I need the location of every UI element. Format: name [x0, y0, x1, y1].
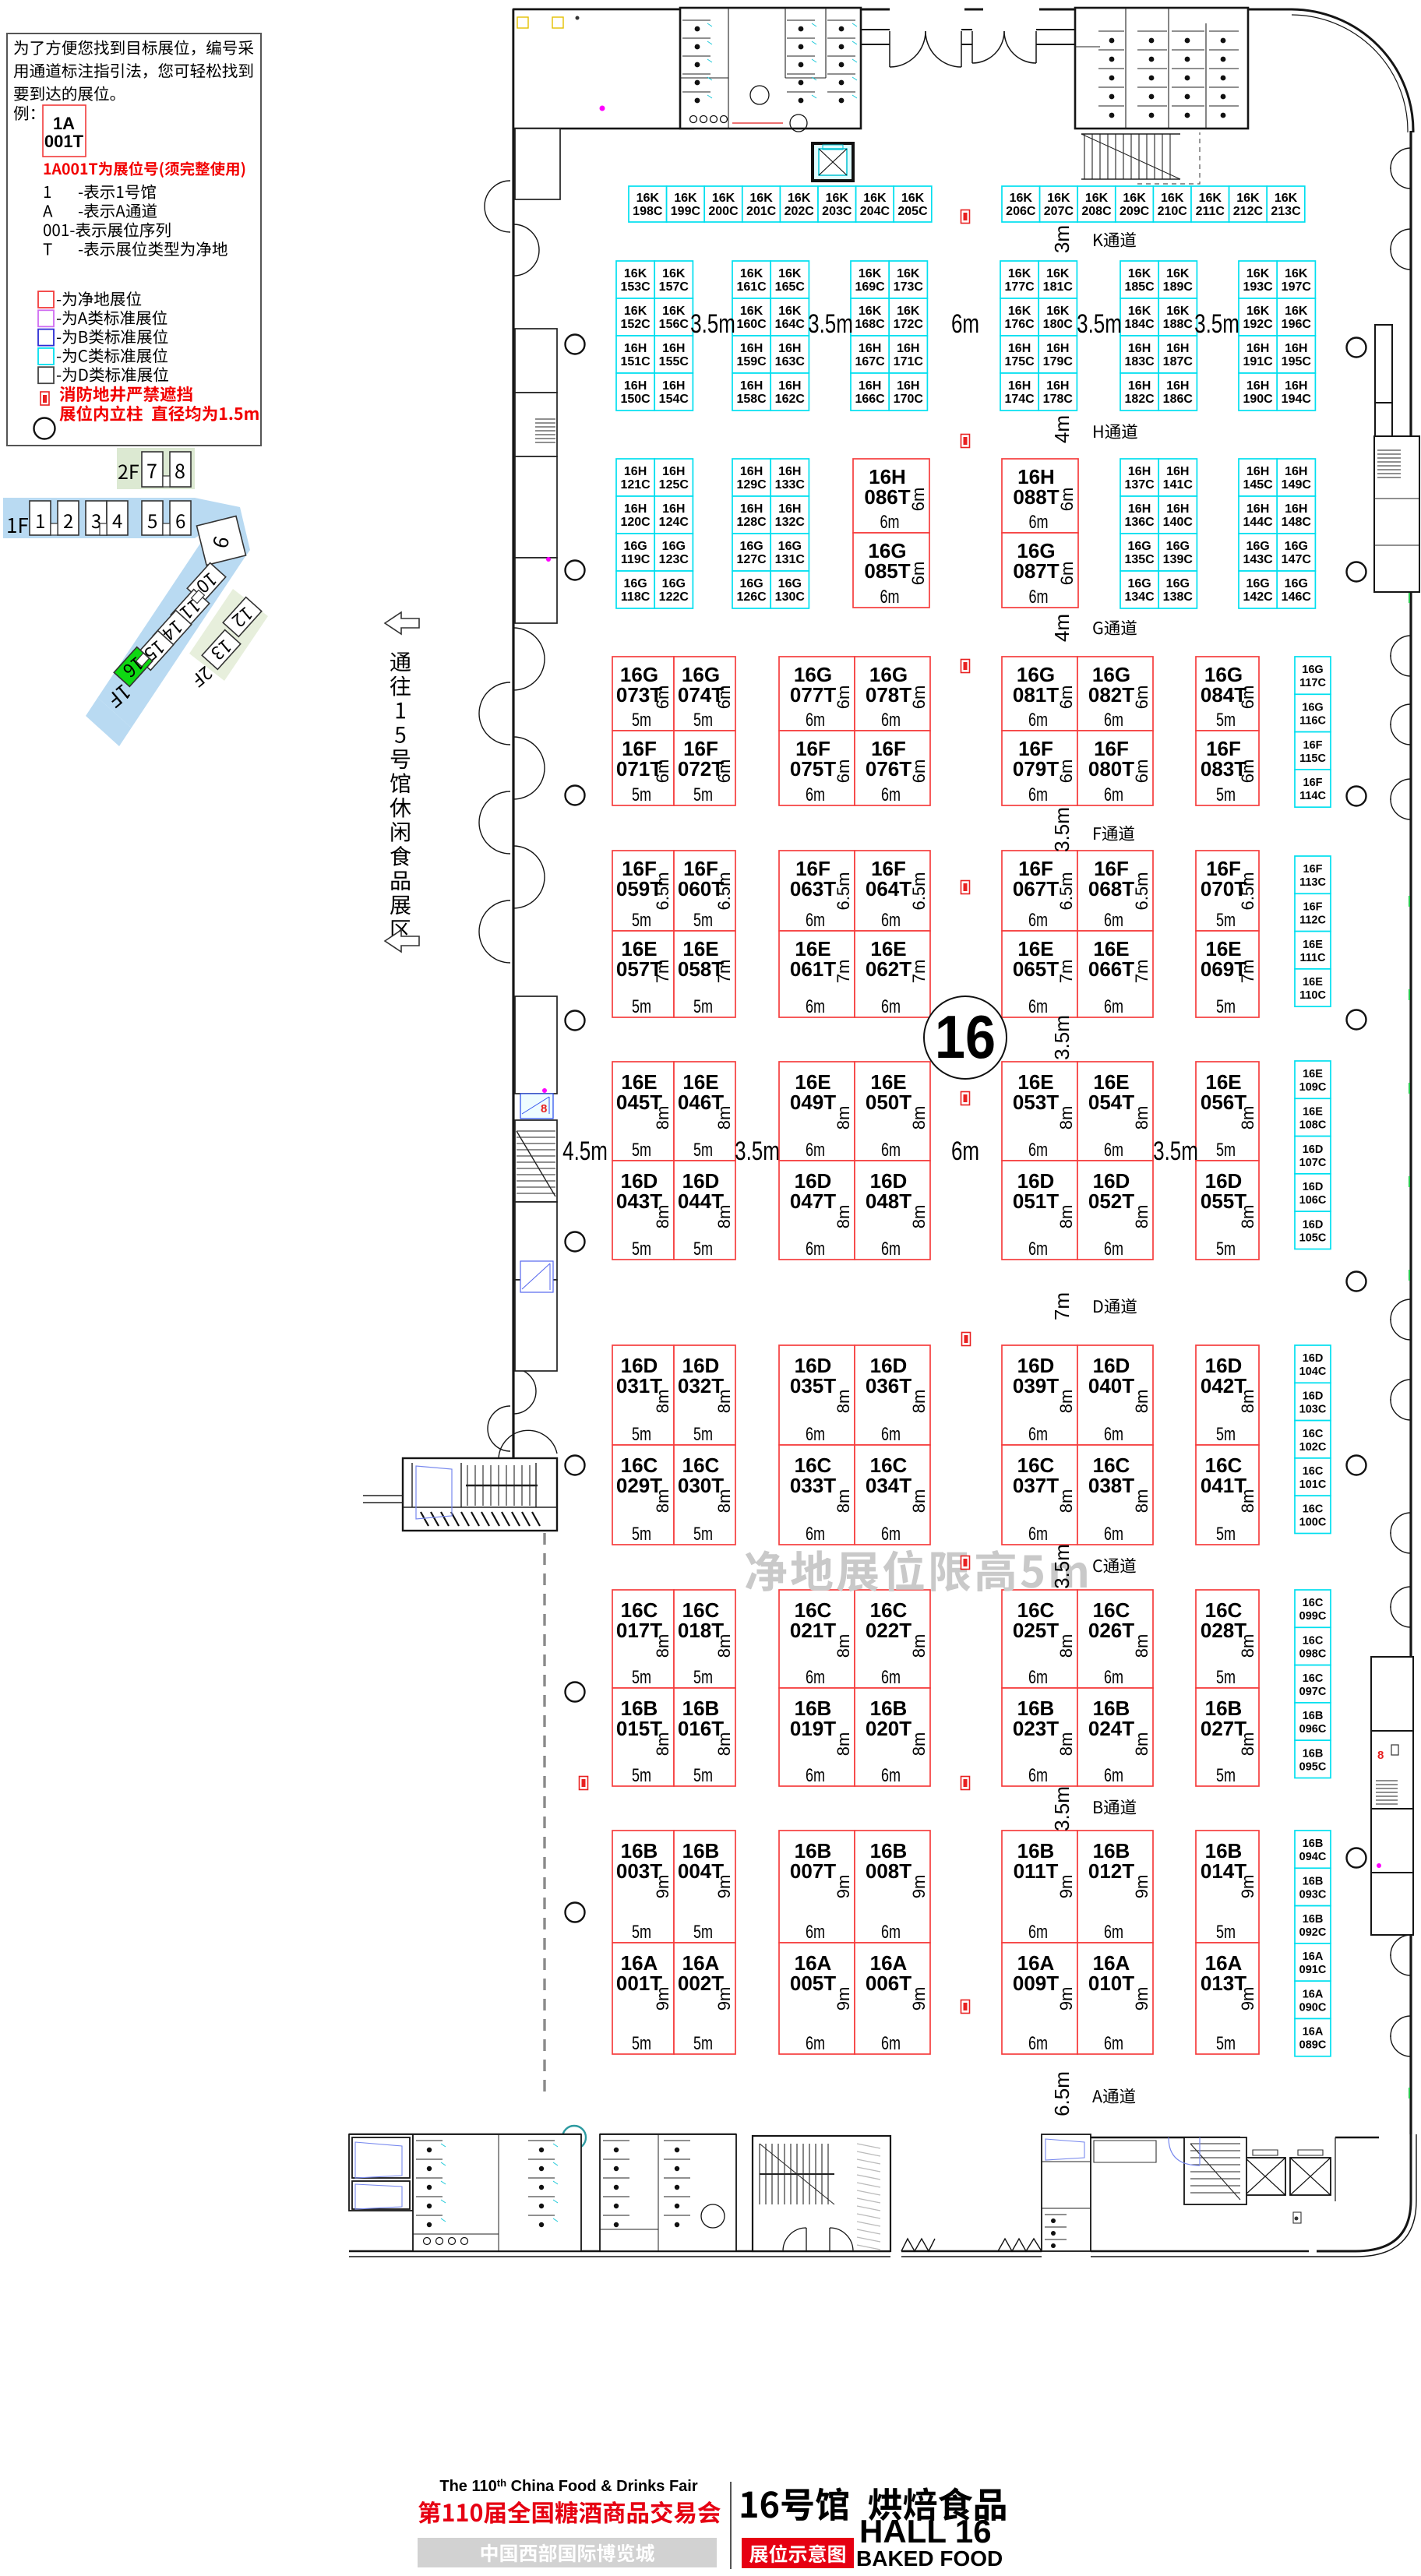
svg-text:036T: 036T	[866, 1374, 911, 1397]
svg-text:109C: 109C	[1299, 1081, 1327, 1094]
svg-text:209C: 209C	[1120, 205, 1150, 218]
svg-text:6m: 6m	[1104, 1766, 1123, 1786]
svg-text:16H: 16H	[1246, 379, 1269, 393]
svg-text:6m: 6m	[1238, 685, 1257, 710]
svg-text:117C: 117C	[1299, 677, 1326, 689]
svg-text:16A: 16A	[1303, 2026, 1324, 2039]
svg-text:211C: 211C	[1196, 205, 1225, 218]
svg-text:6m: 6m	[1104, 710, 1123, 731]
svg-text:132C: 132C	[775, 516, 806, 529]
svg-text:16A: 16A	[1303, 1988, 1324, 2000]
svg-text:149C: 149C	[1282, 478, 1312, 492]
svg-text:16C: 16C	[1303, 1597, 1324, 1609]
svg-text:204C: 204C	[860, 205, 890, 218]
svg-text:6m: 6m	[881, 710, 901, 731]
svg-text:8m: 8m	[1238, 1732, 1257, 1757]
svg-text:6m: 6m	[1028, 785, 1048, 805]
svg-text:6m: 6m	[806, 1140, 825, 1161]
svg-text:9m: 9m	[1238, 1875, 1257, 1899]
svg-text:16E: 16E	[1303, 976, 1323, 988]
svg-text:139C: 139C	[1163, 553, 1194, 566]
svg-text:16H: 16H	[624, 379, 647, 393]
svg-text:16H: 16H	[859, 379, 881, 393]
svg-text:16K: 16K	[863, 192, 887, 205]
svg-text:5m: 5m	[693, 997, 713, 1017]
svg-text:16K: 16K	[1123, 192, 1146, 205]
svg-text:025T: 025T	[1013, 1619, 1059, 1642]
svg-text:16G: 16G	[739, 540, 763, 553]
svg-text:087T: 087T	[1013, 559, 1059, 583]
svg-text:135C: 135C	[1124, 553, 1155, 566]
svg-text:6m: 6m	[806, 911, 825, 931]
svg-text:8m: 8m	[1238, 1489, 1257, 1514]
svg-text:131C: 131C	[775, 553, 806, 566]
svg-text:6m: 6m	[714, 685, 734, 710]
svg-text:6m: 6m	[1104, 911, 1123, 931]
svg-text:16B: 16B	[1303, 1710, 1324, 1722]
svg-text:6m: 6m	[1028, 1239, 1048, 1260]
svg-text:6m: 6m	[881, 1425, 901, 1445]
svg-text:5m: 5m	[1216, 1239, 1236, 1260]
svg-text:16H: 16H	[1128, 465, 1151, 478]
svg-text:16K: 16K	[1275, 192, 1298, 205]
svg-text:5m: 5m	[1216, 1922, 1236, 1943]
svg-text:16F: 16F	[1303, 901, 1323, 914]
svg-text:174C: 174C	[1004, 393, 1035, 406]
svg-text:16H: 16H	[624, 465, 647, 478]
svg-text:136C: 136C	[1124, 516, 1155, 529]
svg-text:212C: 212C	[1233, 205, 1264, 218]
svg-text:8m: 8m	[1132, 1390, 1151, 1414]
svg-text:184C: 184C	[1124, 318, 1155, 331]
svg-text:16F: 16F	[1303, 777, 1323, 789]
svg-text:8: 8	[1377, 1749, 1384, 1762]
svg-text:8m: 8m	[1056, 1489, 1076, 1514]
svg-text:165C: 165C	[775, 280, 806, 294]
svg-text:053T: 053T	[1013, 1091, 1059, 1114]
svg-text:118C: 118C	[621, 590, 651, 604]
svg-text:033T: 033T	[790, 1474, 836, 1497]
svg-text:8m: 8m	[909, 1390, 929, 1414]
svg-text:6m: 6m	[1028, 1668, 1048, 1688]
svg-text:035T: 035T	[790, 1374, 836, 1397]
svg-text:8m: 8m	[1056, 1634, 1076, 1658]
svg-text:8m: 8m	[653, 1732, 672, 1757]
svg-text:050T: 050T	[866, 1091, 911, 1114]
svg-text:16K: 16K	[1285, 267, 1308, 280]
svg-text:16H: 16H	[1166, 342, 1189, 355]
svg-text:6m: 6m	[881, 1668, 901, 1688]
svg-text:8m: 8m	[909, 1634, 929, 1658]
svg-text:16C: 16C	[1303, 1428, 1324, 1440]
svg-text:100C: 100C	[1299, 1516, 1327, 1528]
svg-text:021T: 021T	[790, 1619, 836, 1642]
svg-text:7m: 7m	[653, 960, 672, 984]
svg-text:8m: 8m	[834, 1205, 853, 1229]
svg-text:6m: 6m	[834, 685, 853, 710]
svg-text:6m: 6m	[806, 1922, 825, 1943]
svg-text:5m: 5m	[632, 1524, 651, 1545]
svg-text:6.5m: 6.5m	[834, 872, 853, 911]
svg-text:16H: 16H	[778, 379, 801, 393]
svg-text:3.5m: 3.5m	[1077, 310, 1122, 339]
svg-text:3.5m: 3.5m	[1050, 807, 1074, 852]
svg-text:16G: 16G	[1166, 540, 1190, 553]
svg-text:16F: 16F	[1303, 739, 1323, 752]
svg-text:160C: 160C	[736, 318, 767, 331]
svg-text:8m: 8m	[909, 1732, 929, 1757]
svg-text:047T: 047T	[790, 1189, 836, 1213]
svg-text:127C: 127C	[736, 553, 767, 566]
svg-text:129C: 129C	[736, 478, 767, 492]
svg-text:178C: 178C	[1043, 393, 1074, 406]
svg-text:8m: 8m	[834, 1489, 853, 1514]
svg-text:6m: 6m	[806, 997, 825, 1017]
svg-text:16K: 16K	[778, 305, 802, 318]
svg-text:16H: 16H	[1128, 379, 1151, 393]
svg-text:5m: 5m	[1216, 710, 1236, 731]
svg-text:6m: 6m	[1028, 997, 1048, 1017]
svg-text:5m: 5m	[632, 1668, 651, 1688]
svg-text:198C: 198C	[633, 205, 663, 218]
svg-text:4m: 4m	[1050, 614, 1074, 642]
svg-text:6.5m: 6.5m	[714, 872, 734, 911]
svg-text:7m: 7m	[909, 960, 929, 984]
svg-text:171C: 171C	[894, 355, 924, 368]
svg-text:8m: 8m	[714, 1390, 734, 1414]
svg-text:8m: 8m	[1132, 1634, 1151, 1658]
svg-text:9m: 9m	[653, 1987, 672, 2011]
svg-text:3.5m: 3.5m	[735, 1137, 780, 1166]
svg-text:16K: 16K	[674, 192, 697, 205]
svg-text:9m: 9m	[1056, 1987, 1076, 2011]
svg-text:7m: 7m	[1050, 1292, 1074, 1320]
svg-text:167C: 167C	[855, 355, 885, 368]
svg-text:16B: 16B	[1303, 1876, 1324, 1888]
svg-text:16K: 16K	[1046, 305, 1070, 318]
svg-text:113C: 113C	[1299, 876, 1326, 889]
svg-text:5m: 5m	[1216, 785, 1236, 805]
svg-text:16H: 16H	[1285, 379, 1307, 393]
svg-text:6.5m: 6.5m	[1056, 872, 1076, 911]
svg-text:062T: 062T	[866, 957, 911, 981]
svg-text:5m: 5m	[693, 1668, 713, 1688]
svg-text:16H: 16H	[1008, 379, 1031, 393]
svg-text:177C: 177C	[1004, 280, 1035, 294]
svg-text:16K: 16K	[624, 305, 647, 318]
svg-text:097C: 097C	[1299, 1686, 1327, 1698]
svg-text:5m: 5m	[693, 1524, 713, 1545]
svg-text:6m: 6m	[1057, 488, 1077, 512]
svg-text:6m: 6m	[881, 1766, 901, 1786]
svg-text:210C: 210C	[1158, 205, 1188, 218]
svg-text:6m: 6m	[1057, 562, 1077, 586]
svg-text:8m: 8m	[1238, 1634, 1257, 1658]
svg-text:6m: 6m	[1028, 587, 1048, 608]
svg-text:6m: 6m	[881, 1140, 901, 1161]
svg-text:16K: 16K	[1010, 192, 1033, 205]
svg-text:9m: 9m	[714, 1987, 734, 2011]
svg-text:6m: 6m	[1238, 759, 1257, 784]
svg-text:153C: 153C	[620, 280, 651, 294]
svg-text:16G: 16G	[1127, 577, 1151, 590]
svg-text:16H: 16H	[740, 379, 763, 393]
svg-text:6.5m: 6.5m	[1132, 872, 1151, 911]
svg-text:16H: 16H	[1166, 502, 1189, 516]
svg-text:16G: 16G	[1285, 540, 1308, 553]
svg-text:6m: 6m	[1056, 685, 1076, 710]
svg-text:6m: 6m	[881, 911, 901, 931]
svg-text:125C: 125C	[659, 478, 689, 492]
svg-text:166C: 166C	[855, 393, 885, 406]
svg-text:16H: 16H	[1285, 342, 1307, 355]
svg-text:183C: 183C	[1124, 355, 1155, 368]
svg-text:16H: 16H	[897, 379, 919, 393]
svg-text:079T: 079T	[1013, 757, 1059, 781]
svg-text:16G: 16G	[1127, 540, 1151, 553]
svg-text:8m: 8m	[1132, 1205, 1151, 1229]
svg-text:089C: 089C	[1299, 2039, 1327, 2052]
svg-text:6m: 6m	[1104, 1140, 1123, 1161]
svg-text:16G: 16G	[1302, 701, 1323, 714]
svg-text:6m: 6m	[1104, 1425, 1123, 1445]
svg-text:6m: 6m	[1104, 997, 1123, 1017]
svg-text:16H: 16H	[1246, 342, 1269, 355]
svg-text:007T: 007T	[790, 1859, 836, 1883]
svg-text:6m: 6m	[1028, 911, 1048, 931]
svg-text:16C: 16C	[1303, 1503, 1324, 1515]
svg-text:8m: 8m	[1056, 1732, 1076, 1757]
svg-text:9m: 9m	[834, 1987, 853, 2011]
svg-text:076T: 076T	[866, 757, 911, 781]
svg-text:104C: 104C	[1299, 1366, 1327, 1378]
svg-text:066T: 066T	[1088, 957, 1134, 981]
svg-text:16E: 16E	[1303, 1106, 1323, 1119]
svg-text:126C: 126C	[736, 590, 767, 604]
svg-text:6m: 6m	[908, 488, 928, 512]
svg-text:5m: 5m	[632, 2034, 651, 2054]
svg-text:5m: 5m	[1216, 1668, 1236, 1688]
svg-text:16H: 16H	[1166, 465, 1189, 478]
svg-text:199C: 199C	[671, 205, 701, 218]
svg-text:034T: 034T	[866, 1474, 911, 1497]
svg-text:16G: 16G	[1246, 577, 1269, 590]
svg-text:16H: 16H	[740, 502, 763, 516]
svg-text:068T: 068T	[1088, 877, 1134, 900]
svg-text:5m: 5m	[1216, 1766, 1236, 1786]
svg-text:6m: 6m	[951, 1137, 979, 1166]
svg-text:16B: 16B	[1303, 1838, 1324, 1850]
svg-text:051T: 051T	[1013, 1189, 1059, 1213]
svg-text:16K: 16K	[624, 267, 647, 280]
svg-text:077T: 077T	[790, 683, 836, 707]
svg-text:112C: 112C	[1299, 914, 1326, 927]
svg-text:16K: 16K	[1246, 267, 1270, 280]
svg-text:3m: 3m	[1050, 225, 1074, 253]
svg-text:081T: 081T	[1013, 683, 1059, 707]
svg-text:145C: 145C	[1243, 478, 1273, 492]
svg-text:8m: 8m	[834, 1106, 853, 1130]
svg-text:1A: 1A	[53, 114, 75, 133]
svg-text:5m: 5m	[1216, 1524, 1236, 1545]
svg-text:8m: 8m	[909, 1489, 929, 1514]
svg-text:159C: 159C	[736, 355, 767, 368]
svg-text:208C: 208C	[1081, 205, 1112, 218]
svg-text:105C: 105C	[1299, 1232, 1327, 1244]
svg-text:005T: 005T	[790, 1972, 836, 1995]
svg-text:090C: 090C	[1299, 2001, 1327, 2014]
svg-text:4m: 4m	[1050, 415, 1074, 443]
svg-text:049T: 049T	[790, 1091, 836, 1114]
svg-text:175C: 175C	[1004, 355, 1035, 368]
svg-text:6m: 6m	[806, 1766, 825, 1786]
svg-text:3.5m: 3.5m	[1153, 1137, 1198, 1166]
svg-text:16D: 16D	[1303, 1352, 1324, 1365]
svg-text:16D: 16D	[1303, 1390, 1324, 1403]
svg-text:16K: 16K	[826, 192, 849, 205]
svg-text:6m: 6m	[1104, 1922, 1123, 1943]
svg-text:040T: 040T	[1088, 1374, 1134, 1397]
svg-text:16G: 16G	[662, 540, 686, 553]
svg-text:099C: 099C	[1299, 1610, 1327, 1623]
svg-text:206C: 206C	[1006, 205, 1036, 218]
svg-text:6m: 6m	[951, 310, 979, 339]
svg-text:180C: 180C	[1043, 318, 1074, 331]
svg-text:5m: 5m	[632, 1766, 651, 1786]
svg-text:176C: 176C	[1004, 318, 1035, 331]
svg-text:8m: 8m	[834, 1634, 853, 1658]
svg-text:037T: 037T	[1013, 1474, 1059, 1497]
svg-text:189C: 189C	[1163, 280, 1194, 294]
svg-text:6m: 6m	[1028, 1524, 1048, 1545]
svg-text:6m: 6m	[1028, 513, 1048, 533]
svg-text:16G: 16G	[1285, 577, 1308, 590]
svg-text:16H: 16H	[1166, 379, 1189, 393]
svg-text:182C: 182C	[1124, 393, 1155, 406]
svg-text:16K: 16K	[901, 192, 925, 205]
svg-text:048T: 048T	[866, 1189, 911, 1213]
svg-text:8m: 8m	[909, 1106, 929, 1130]
svg-text:16H: 16H	[897, 342, 919, 355]
svg-text:202C: 202C	[785, 205, 815, 218]
svg-text:086T: 086T	[864, 485, 910, 509]
svg-text:9m: 9m	[1238, 1987, 1257, 2011]
svg-text:16K: 16K	[1046, 267, 1070, 280]
svg-text:16H: 16H	[662, 379, 685, 393]
svg-text:009T: 009T	[1013, 1972, 1059, 1995]
svg-text:172C: 172C	[894, 318, 924, 331]
svg-text:9m: 9m	[1132, 1987, 1151, 2011]
svg-text:022T: 022T	[866, 1619, 911, 1642]
svg-text:6m: 6m	[1132, 685, 1151, 710]
svg-text:192C: 192C	[1243, 318, 1273, 331]
svg-text:3.5m: 3.5m	[1050, 1544, 1074, 1589]
svg-text:16K: 16K	[636, 192, 660, 205]
svg-text:8m: 8m	[909, 1205, 929, 1229]
svg-text:8m: 8m	[1056, 1106, 1076, 1130]
svg-text:6.5m: 6.5m	[1238, 872, 1257, 911]
svg-text:6m: 6m	[1028, 1922, 1048, 1943]
svg-text:186C: 186C	[1163, 393, 1194, 406]
svg-text:6m: 6m	[714, 759, 734, 784]
svg-text:001T: 001T	[44, 132, 84, 151]
svg-text:134C: 134C	[1124, 590, 1155, 604]
svg-text:8m: 8m	[834, 1390, 853, 1414]
svg-text:146C: 146C	[1282, 590, 1312, 604]
svg-text:16E: 16E	[1303, 939, 1323, 951]
svg-text:16A: 16A	[1303, 1951, 1324, 1963]
svg-text:200C: 200C	[708, 205, 739, 218]
svg-text:9m: 9m	[834, 1875, 853, 1899]
svg-text:16H: 16H	[740, 465, 763, 478]
svg-text:114C: 114C	[1299, 790, 1326, 802]
svg-text:16C: 16C	[1303, 1635, 1324, 1647]
svg-text:185C: 185C	[1124, 280, 1155, 294]
svg-text:9m: 9m	[653, 1875, 672, 1899]
svg-text:085T: 085T	[864, 559, 910, 583]
svg-text:16K: 16K	[1128, 267, 1151, 280]
svg-text:8m: 8m	[1132, 1106, 1151, 1130]
svg-text:16G: 16G	[739, 577, 763, 590]
svg-text:16H: 16H	[1285, 465, 1307, 478]
svg-text:194C: 194C	[1282, 393, 1312, 406]
svg-text:5m: 5m	[632, 1140, 651, 1161]
svg-text:147C: 147C	[1282, 553, 1312, 566]
svg-text:5m: 5m	[693, 1766, 713, 1786]
svg-text:154C: 154C	[659, 393, 689, 406]
svg-text:102C: 102C	[1299, 1441, 1327, 1454]
svg-text:5m: 5m	[632, 1922, 651, 1943]
svg-text:8m: 8m	[834, 1732, 853, 1757]
svg-text:16H: 16H	[624, 502, 647, 516]
svg-text:16H: 16H	[1128, 502, 1151, 516]
svg-text:6m: 6m	[1104, 1524, 1123, 1545]
svg-text:111C: 111C	[1299, 952, 1326, 964]
svg-text:16K: 16K	[897, 305, 920, 318]
svg-text:064T: 064T	[866, 877, 911, 900]
svg-text:8m: 8m	[1238, 1106, 1257, 1130]
svg-text:7m: 7m	[1238, 960, 1257, 984]
svg-text:5m: 5m	[693, 1922, 713, 1943]
svg-text:170C: 170C	[894, 393, 924, 406]
svg-text:161C: 161C	[736, 280, 767, 294]
svg-text:133C: 133C	[775, 478, 806, 492]
svg-text:054T: 054T	[1088, 1091, 1134, 1114]
svg-text:088T: 088T	[1013, 485, 1059, 509]
svg-text:5m: 5m	[1216, 1425, 1236, 1445]
svg-text:16K: 16K	[1166, 267, 1190, 280]
svg-text:8: 8	[541, 1102, 547, 1115]
svg-text:16K: 16K	[712, 192, 735, 205]
svg-text:16G: 16G	[1166, 577, 1190, 590]
svg-text:179C: 179C	[1043, 355, 1074, 368]
svg-text:023T: 023T	[1013, 1717, 1059, 1740]
svg-text:193C: 193C	[1243, 280, 1273, 294]
svg-text:5m: 5m	[1216, 2034, 1236, 2054]
svg-text:5m: 5m	[693, 1140, 713, 1161]
svg-text:16K: 16K	[740, 305, 763, 318]
svg-text:124C: 124C	[659, 516, 689, 529]
svg-text:143C: 143C	[1243, 553, 1273, 566]
svg-text:103C: 103C	[1299, 1404, 1327, 1416]
svg-text:6m: 6m	[881, 1922, 901, 1943]
svg-text:151C: 151C	[620, 355, 651, 368]
svg-text:6m: 6m	[1104, 1239, 1123, 1260]
svg-text:16D: 16D	[1303, 1181, 1324, 1193]
svg-text:16F: 16F	[1303, 863, 1323, 876]
svg-text:16K: 16K	[1008, 267, 1031, 280]
svg-text:6.5m: 6.5m	[1050, 2071, 1074, 2116]
